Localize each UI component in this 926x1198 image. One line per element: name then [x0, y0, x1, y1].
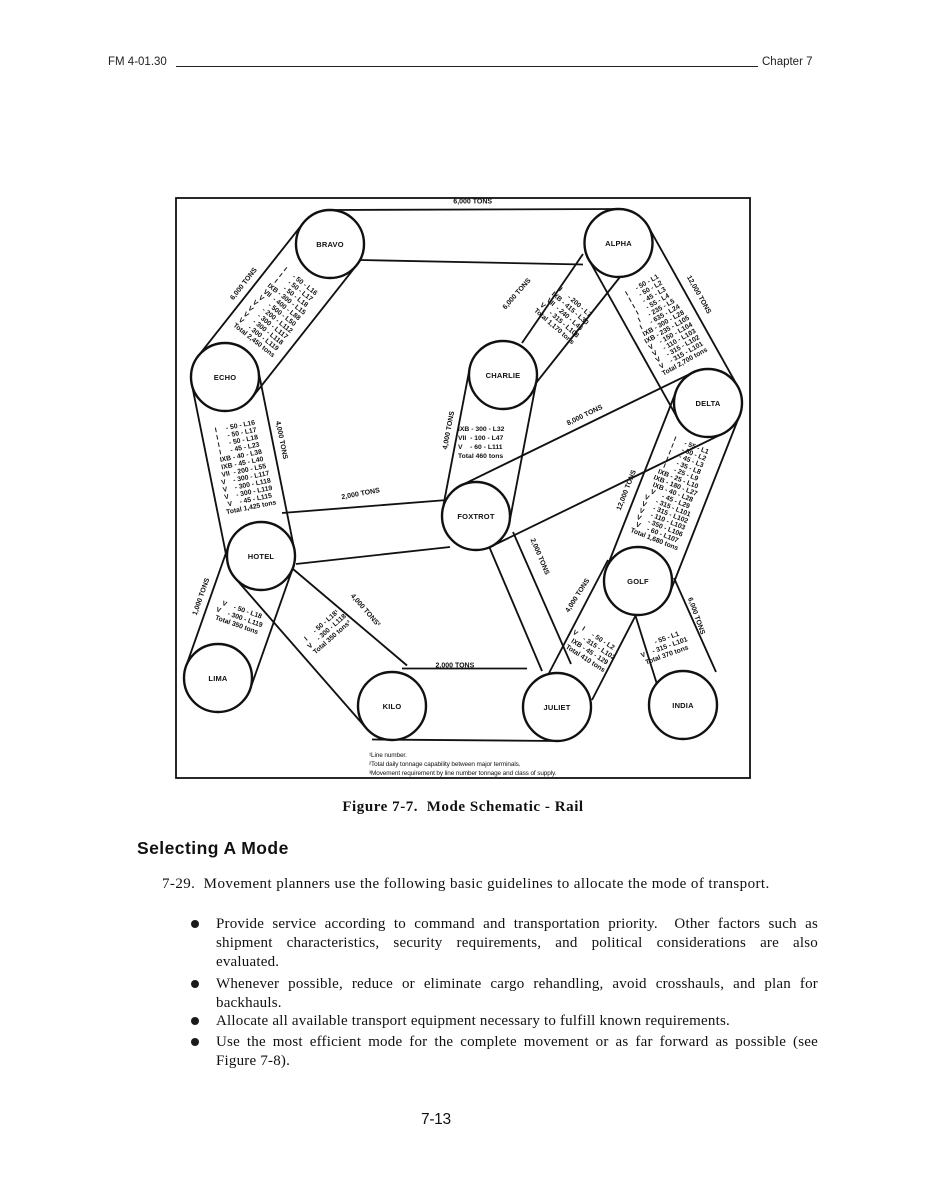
svg-text:6,000 TONS: 6,000 TONS	[502, 277, 533, 311]
svg-text:KILO: KILO	[383, 702, 402, 711]
svg-text:6,000 TONS: 6,000 TONS	[453, 199, 492, 206]
svg-text:8,000 TONS: 8,000 TONS	[566, 404, 604, 427]
svg-text:³Movement requirement by line: ³Movement requirement by line number ton…	[369, 770, 557, 777]
svg-text:V - 60 - L111: V - 60 - L111	[458, 444, 503, 451]
svg-text:IXB - 300 - L32: IXB - 300 - L32	[458, 426, 505, 433]
svg-text:2,000 TONS: 2,000 TONS	[436, 662, 475, 669]
svg-text:CHARLIE: CHARLIE	[486, 371, 521, 380]
svg-text:DELTA: DELTA	[696, 399, 721, 408]
svg-text:ALPHA: ALPHA	[605, 239, 632, 248]
svg-text:4,000 TONS²: 4,000 TONS²	[349, 593, 382, 629]
svg-text:FOXTROT: FOXTROT	[457, 512, 494, 521]
svg-text:GOLF: GOLF	[627, 577, 649, 586]
svg-text:HOTEL: HOTEL	[248, 552, 275, 561]
svg-text:INDIA: INDIA	[672, 701, 694, 710]
svg-text:6,000 TONS: 6,000 TONS	[686, 597, 706, 636]
svg-text:12,000 TONS: 12,000 TONS	[616, 469, 638, 512]
svg-text:ECHO: ECHO	[214, 373, 236, 382]
svg-text:VII - 100 - L47: VII - 100 - L47	[458, 435, 504, 442]
svg-text:1,000 TONS: 1,000 TONS	[192, 577, 212, 616]
svg-text:BRAVO: BRAVO	[316, 240, 344, 249]
svg-text:LIMA: LIMA	[208, 674, 228, 683]
svg-text:JULIET: JULIET	[543, 703, 570, 712]
svg-text:4,000 TONS: 4,000 TONS	[565, 577, 592, 614]
svg-text:4,000 TONS: 4,000 TONS	[442, 410, 456, 450]
svg-text:2,000 TONS: 2,000 TONS	[529, 537, 551, 576]
svg-text:12,000 TONS: 12,000 TONS	[685, 275, 712, 316]
svg-text:Total 460 tons: Total 460 tons	[458, 453, 503, 460]
svg-text:²Total daily tonnage capabilit: ²Total daily tonnage capability between …	[369, 761, 521, 768]
svg-text:2,000 TONS: 2,000 TONS	[341, 487, 381, 501]
svg-text:¹Line number.: ¹Line number.	[369, 752, 407, 759]
